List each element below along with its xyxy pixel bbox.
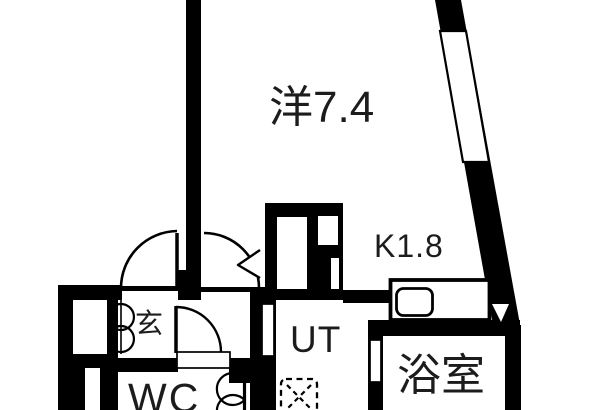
- kitchen-counter: [391, 280, 490, 320]
- niche-slit: [331, 258, 339, 289]
- entrance-door-arc-icon: [121, 231, 177, 288]
- shoe-cabinet-bottom-wall: [73, 354, 118, 368]
- wc-left-wall: [100, 368, 118, 410]
- window-icon: [440, 31, 489, 162]
- door-jamb: [178, 270, 201, 300]
- hall-threshold-icon: [177, 352, 230, 368]
- room-label-kitchen: K1.8: [374, 230, 444, 262]
- niche-large: [277, 217, 307, 289]
- washing-machine-icon: [281, 379, 317, 410]
- right-outer-wall: [505, 325, 521, 410]
- room-label-bathroom: 浴室: [397, 354, 485, 398]
- room-left-wall: [186, 0, 201, 272]
- hall-door-arc-icon: [176, 307, 221, 352]
- floor-plan: 洋7.4 K1.8 玄 UT WC 浴室: [0, 0, 600, 410]
- entrance-threshold-line: [122, 286, 178, 291]
- niche-small: [318, 216, 338, 245]
- room-label-entrance: 玄: [135, 310, 163, 338]
- left-outer-wall: [58, 285, 73, 410]
- hall-bottom-wall-left: [118, 358, 178, 372]
- sink-icon: [397, 289, 433, 316]
- room-label-utility: UT: [290, 321, 341, 358]
- bath-door-icon: [370, 340, 381, 382]
- utility-sliding-door-icon: [262, 304, 274, 356]
- washing-machine-cross: [287, 385, 311, 409]
- corridor-post: [255, 287, 269, 300]
- room-label-toilet: WC: [128, 378, 200, 410]
- shoe-cabinet-wall: [107, 294, 118, 356]
- door-inserts: [177, 304, 381, 382]
- corridor-threshold-line: [201, 287, 258, 292]
- washing-machine-box: [281, 379, 317, 410]
- utility-top-wall: [343, 290, 390, 303]
- room-label-western: 洋7.4: [269, 86, 374, 130]
- bottom-left-wall: [73, 367, 85, 410]
